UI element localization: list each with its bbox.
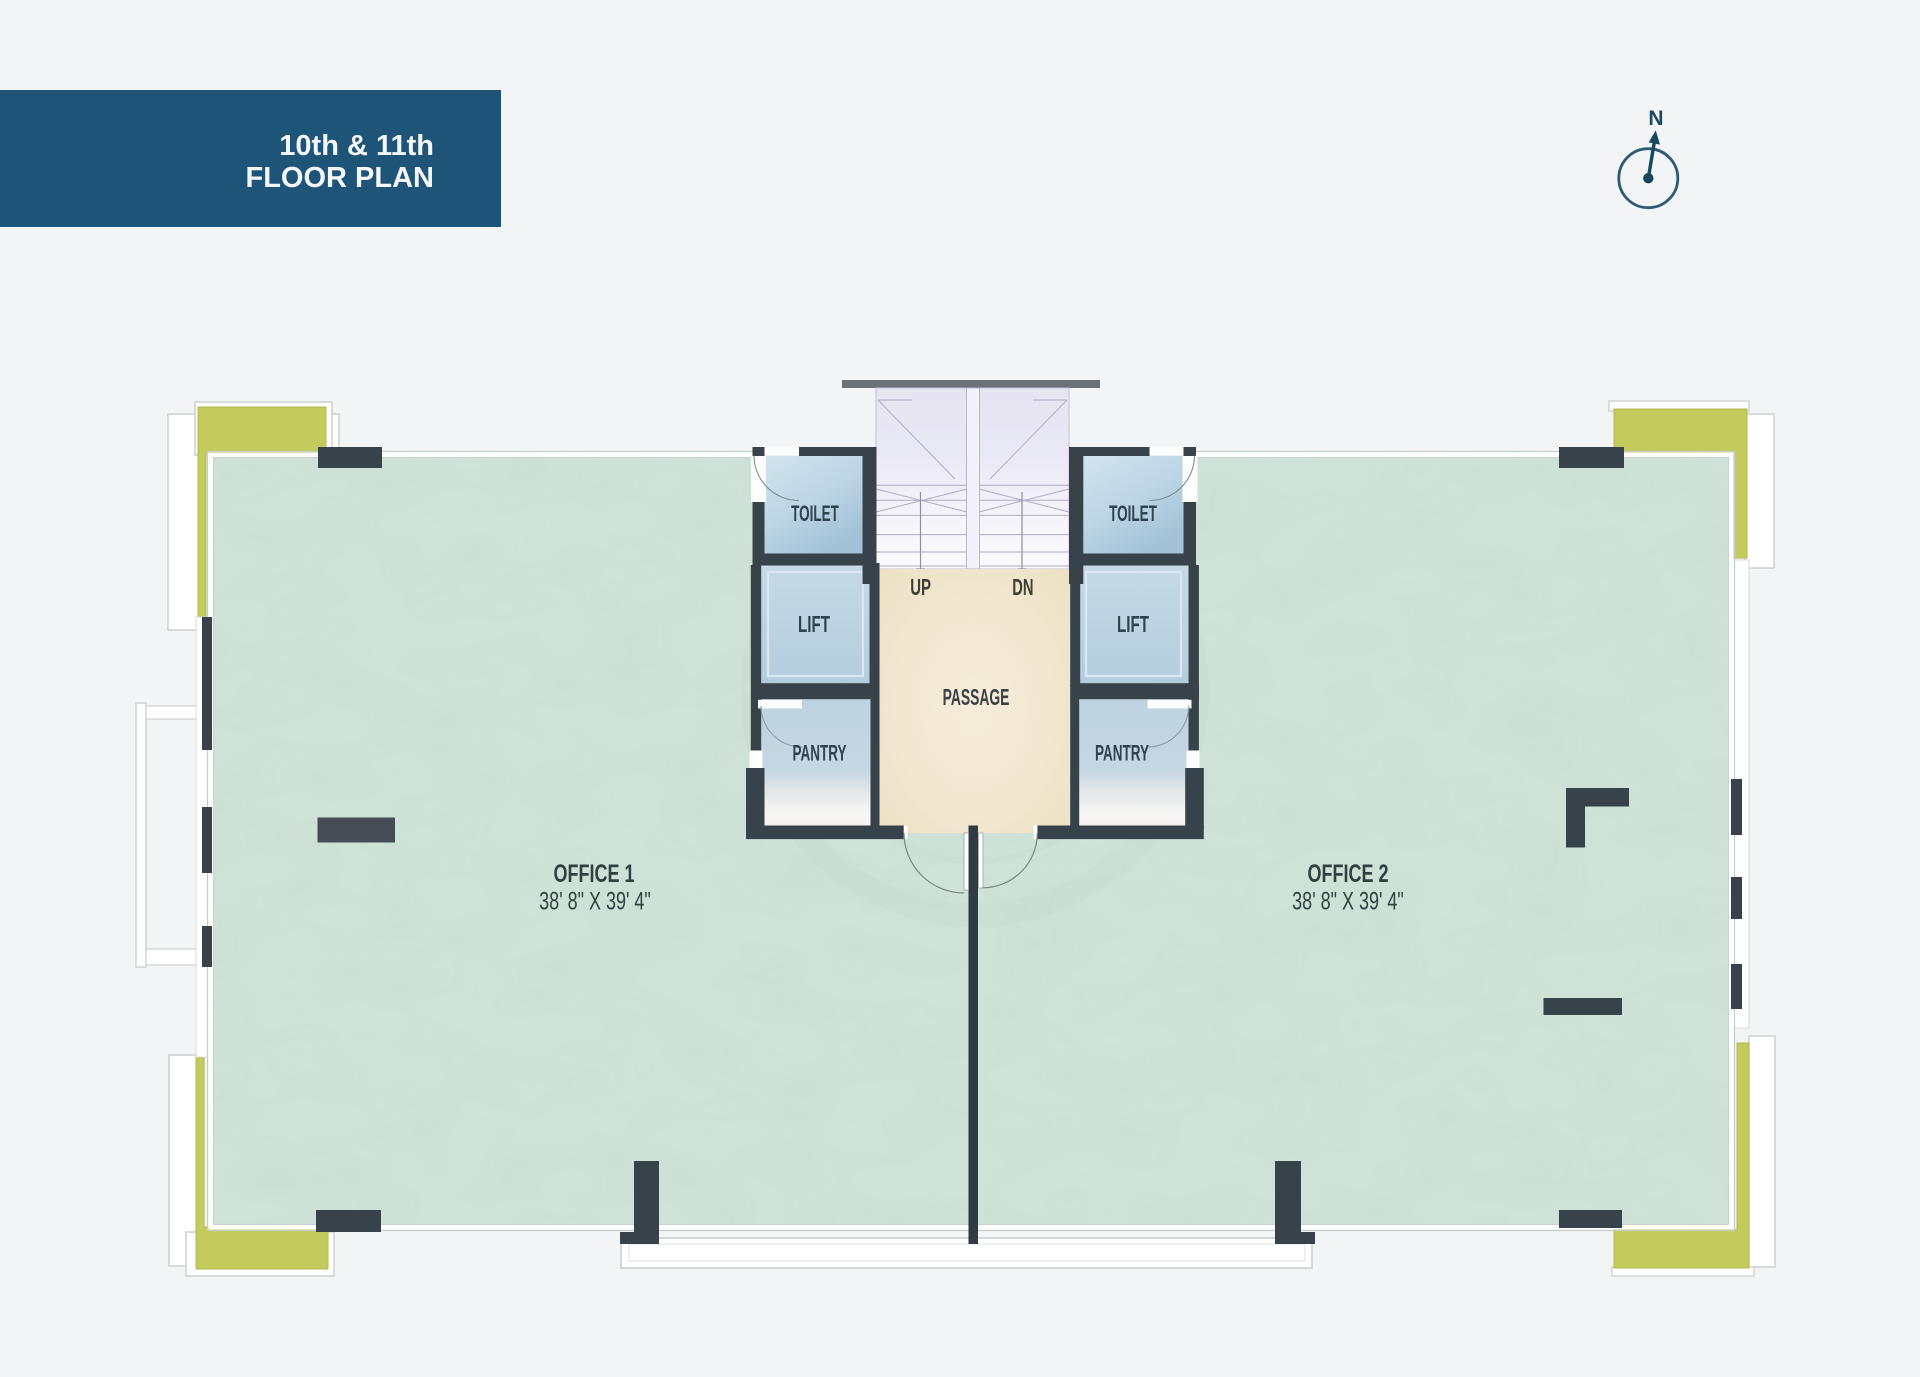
svg-text:LIFT: LIFT [1117, 612, 1149, 638]
svg-text:PANTRY: PANTRY [793, 740, 847, 765]
svg-text:TOILET: TOILET [791, 500, 839, 525]
svg-text:OFFICE 2: OFFICE 2 [1308, 859, 1389, 888]
svg-text:PASSAGE: PASSAGE [943, 686, 1010, 712]
svg-text:LIFT: LIFT [798, 612, 830, 638]
svg-text:TOILET: TOILET [1109, 500, 1157, 525]
svg-text:FLOOR PLAN: FLOOR PLAN [246, 162, 435, 194]
svg-text:PANTRY: PANTRY [1095, 740, 1149, 765]
svg-text:UP: UP [910, 575, 931, 601]
svg-text:N: N [1648, 107, 1663, 130]
svg-text:OFFICE 1: OFFICE 1 [554, 859, 635, 888]
svg-text:38' 8" X 39' 4": 38' 8" X 39' 4" [1292, 887, 1404, 916]
svg-text:10th & 11th: 10th & 11th [279, 130, 434, 162]
svg-text:38' 8" X 39' 4": 38' 8" X 39' 4" [539, 887, 651, 916]
svg-text:DN: DN [1012, 576, 1033, 601]
